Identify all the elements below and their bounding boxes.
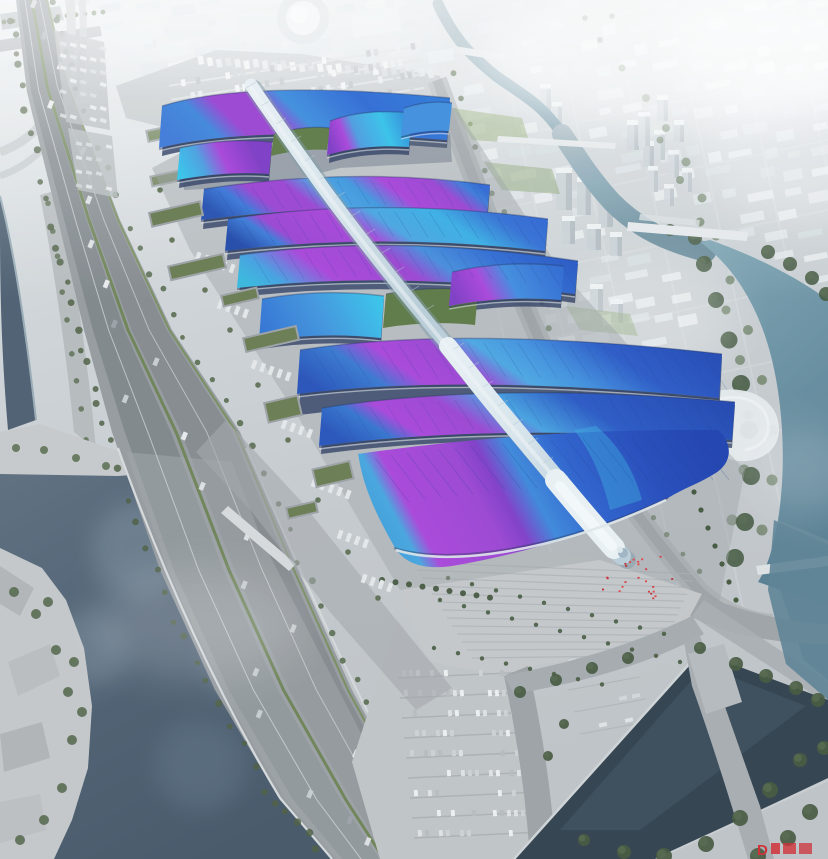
svg-text:D: D: [757, 842, 768, 859]
